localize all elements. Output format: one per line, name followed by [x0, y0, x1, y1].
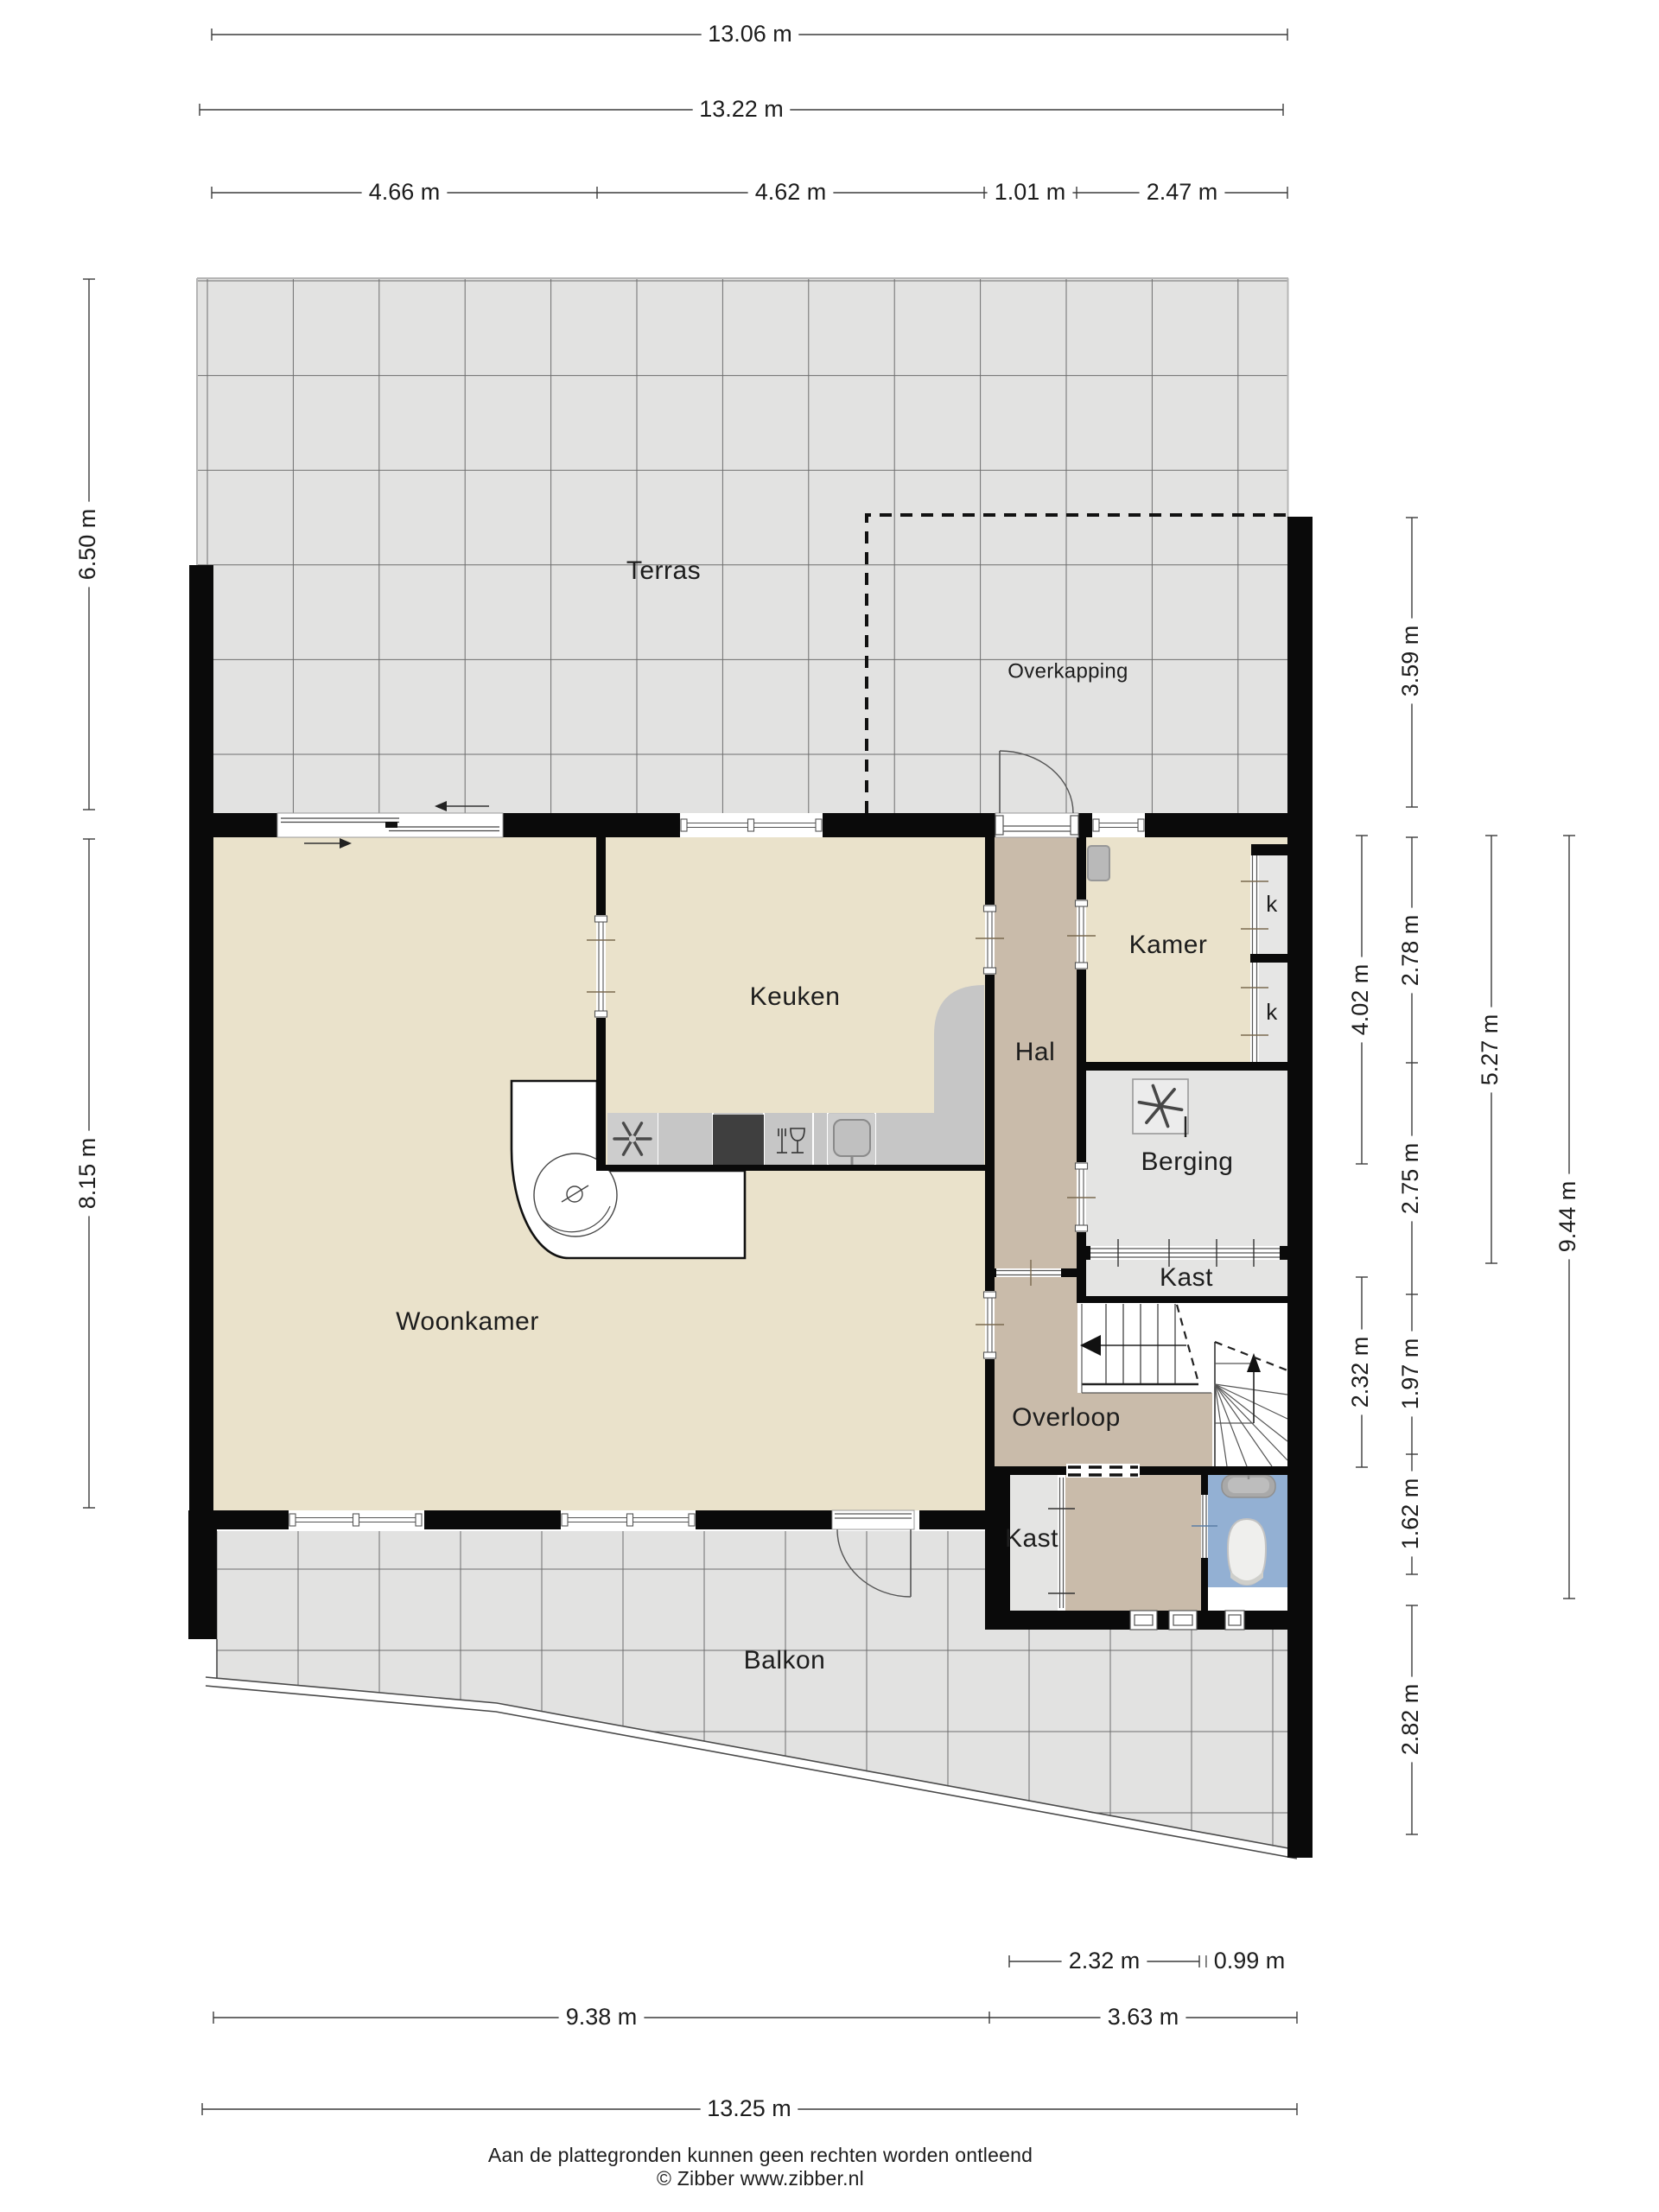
svg-text:Kast: Kast — [1160, 1263, 1213, 1292]
svg-text:Kast: Kast — [1005, 1524, 1058, 1553]
svg-text:13.22 m: 13.22 m — [699, 96, 784, 122]
svg-text:3.59 m: 3.59 m — [1397, 626, 1423, 697]
svg-text:Hal: Hal — [1015, 1038, 1056, 1066]
svg-text:1.62 m: 1.62 m — [1397, 1478, 1423, 1550]
svg-text:2.32 m: 2.32 m — [1069, 1948, 1141, 1974]
svg-text:2.75 m: 2.75 m — [1397, 1143, 1423, 1215]
svg-text:2.32 m: 2.32 m — [1347, 1337, 1373, 1408]
svg-text:13.25 m: 13.25 m — [707, 2095, 791, 2121]
svg-text:k: k — [1266, 999, 1278, 1025]
svg-text:9.44 m: 9.44 m — [1554, 1181, 1580, 1253]
svg-text:2.82 m: 2.82 m — [1397, 1684, 1423, 1756]
svg-text:2.47 m: 2.47 m — [1147, 179, 1218, 205]
svg-text:Woonkamer: Woonkamer — [396, 1307, 539, 1336]
svg-text:2.78 m: 2.78 m — [1397, 915, 1423, 987]
svg-text:4.66 m: 4.66 m — [369, 179, 441, 205]
svg-text:3.63 m: 3.63 m — [1108, 2004, 1179, 2030]
svg-text:0.99 m: 0.99 m — [1214, 1948, 1286, 1974]
svg-text:6.50 m: 6.50 m — [74, 509, 100, 581]
svg-text:1.97 m: 1.97 m — [1397, 1338, 1423, 1410]
svg-text:13.06 m: 13.06 m — [708, 21, 792, 47]
svg-text:Balkon: Balkon — [744, 1646, 826, 1675]
svg-text:Keuken: Keuken — [750, 982, 841, 1011]
svg-text:Terras: Terras — [626, 556, 701, 585]
svg-text:4.62 m: 4.62 m — [755, 179, 827, 205]
svg-text:Overkapping: Overkapping — [1007, 659, 1128, 683]
svg-text:Berging: Berging — [1141, 1147, 1234, 1176]
svg-text:k: k — [1266, 891, 1278, 917]
svg-text:1.01 m: 1.01 m — [995, 179, 1066, 205]
svg-text:4.02 m: 4.02 m — [1347, 964, 1373, 1036]
svg-text:8.15 m: 8.15 m — [74, 1138, 100, 1210]
svg-text:Kamer: Kamer — [1129, 931, 1208, 959]
svg-text:Aan de plattegronden kunnen ge: Aan de plattegronden kunnen geen rechten… — [488, 2144, 1033, 2166]
svg-text:© Zibber www.zibber.nl: © Zibber www.zibber.nl — [657, 2167, 864, 2190]
svg-text:Overloop: Overloop — [1012, 1403, 1121, 1432]
svg-text:9.38 m: 9.38 m — [566, 2004, 638, 2030]
svg-text:5.27 m: 5.27 m — [1477, 1014, 1503, 1086]
